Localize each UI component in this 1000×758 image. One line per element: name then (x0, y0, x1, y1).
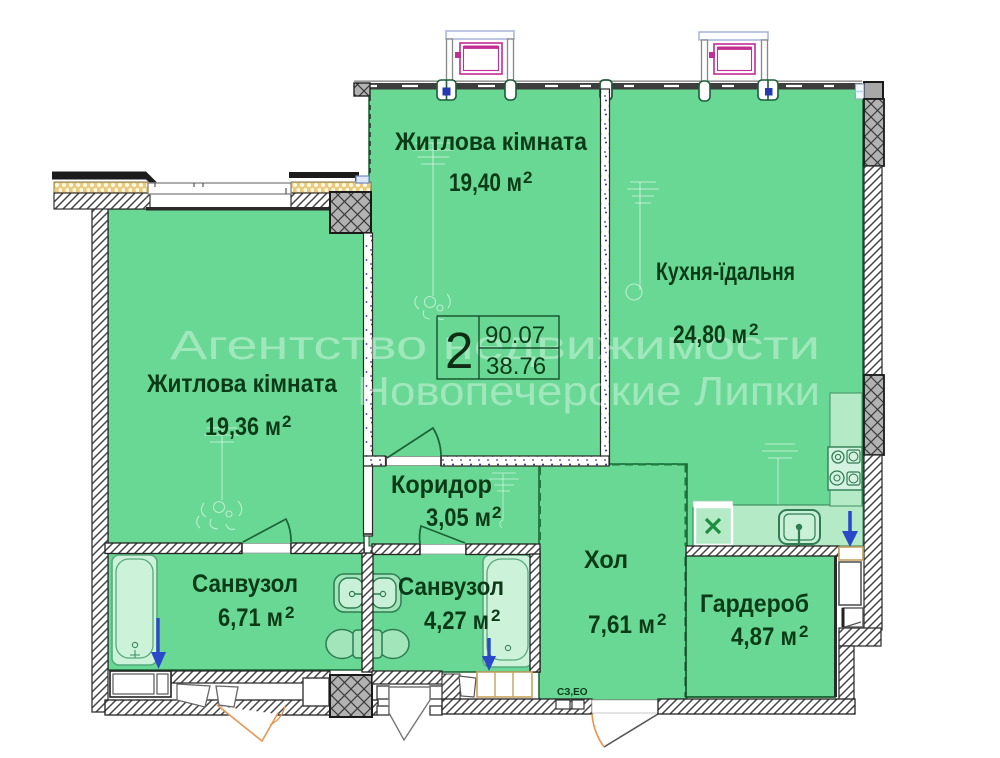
svg-text:19,40 м: 19,40 м (449, 169, 522, 197)
svg-text:2: 2 (657, 610, 666, 629)
svg-text:СЗ,ЕО: СЗ,ЕО (557, 687, 588, 698)
svg-text:Санвузол: Санвузол (398, 573, 504, 601)
svg-text:38.76: 38.76 (486, 353, 546, 380)
svg-text:2: 2 (282, 412, 291, 431)
svg-text:24,80 м: 24,80 м (673, 321, 747, 349)
svg-text:Гардероб: Гардероб (700, 590, 809, 618)
svg-text:Хол: Хол (584, 546, 628, 574)
svg-text:2: 2 (749, 320, 758, 339)
svg-text:Житлова кімната: Житлова кімната (394, 128, 588, 156)
svg-text:2: 2 (491, 606, 500, 625)
svg-text:Коридор: Коридор (391, 471, 492, 499)
svg-text:90.07: 90.07 (485, 322, 545, 349)
svg-text:Новопечерские Липки: Новопечерские Липки (357, 368, 820, 414)
svg-text:2: 2 (445, 322, 473, 379)
svg-text:4,87 м: 4,87 м (731, 623, 797, 651)
svg-text:4,27 м: 4,27 м (424, 607, 489, 635)
svg-text:2: 2 (285, 603, 294, 622)
svg-text:Кухня-їдальня: Кухня-їдальня (656, 258, 795, 286)
svg-text:Житлова кімната: Житлова кімната (146, 370, 338, 398)
svg-text:Санвузол: Санвузол (192, 570, 298, 598)
svg-text:2: 2 (799, 622, 808, 641)
svg-text:3,05 м: 3,05 м (426, 504, 491, 532)
svg-text:6,71 м: 6,71 м (218, 604, 283, 632)
svg-text:2: 2 (523, 168, 532, 187)
svg-text:2: 2 (492, 503, 501, 522)
svg-text:19,36 м: 19,36 м (205, 413, 281, 441)
svg-text:7,61 м: 7,61 м (588, 611, 655, 639)
